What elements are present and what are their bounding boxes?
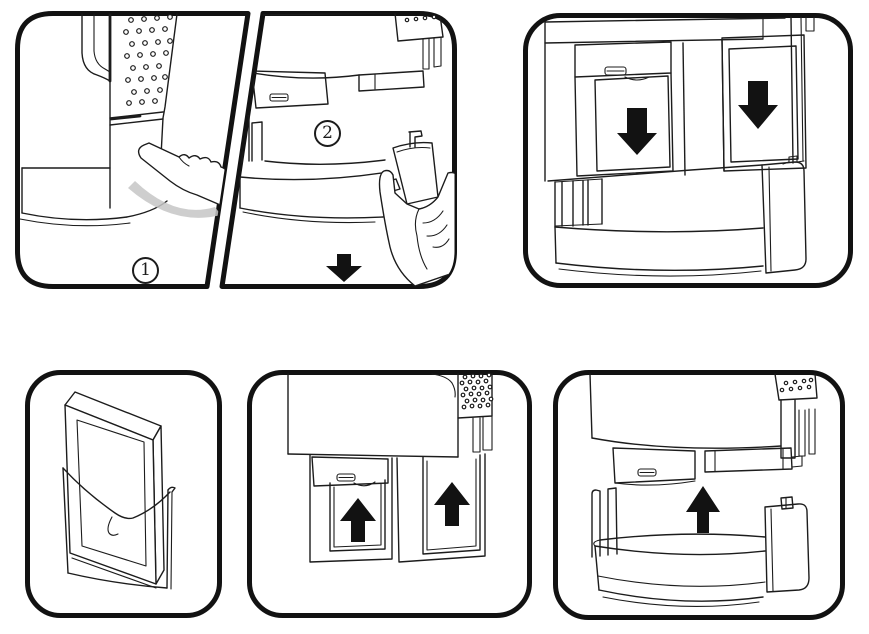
attach-base-cover-illustration xyxy=(553,370,845,620)
instruction-sheet: 1 2 xyxy=(0,0,869,634)
insert-batteries-illustration xyxy=(247,370,532,618)
battery-pack-illustration xyxy=(25,370,222,618)
step-2-badge: 2 xyxy=(314,120,341,147)
panel-attach-base-cover xyxy=(553,370,845,620)
panel-frame xyxy=(250,373,530,616)
remove-batteries-illustration xyxy=(523,13,853,288)
panel-battery-pack xyxy=(25,370,222,618)
step-1-badge: 1 xyxy=(132,257,159,284)
step1-frame xyxy=(18,14,249,287)
panel-insert-batteries xyxy=(247,370,532,618)
panel-press-button-and-remove-cover: 1 2 xyxy=(15,11,457,289)
panel-remove-batteries xyxy=(523,13,853,288)
press-button-remove-cover-illustration xyxy=(15,11,457,289)
